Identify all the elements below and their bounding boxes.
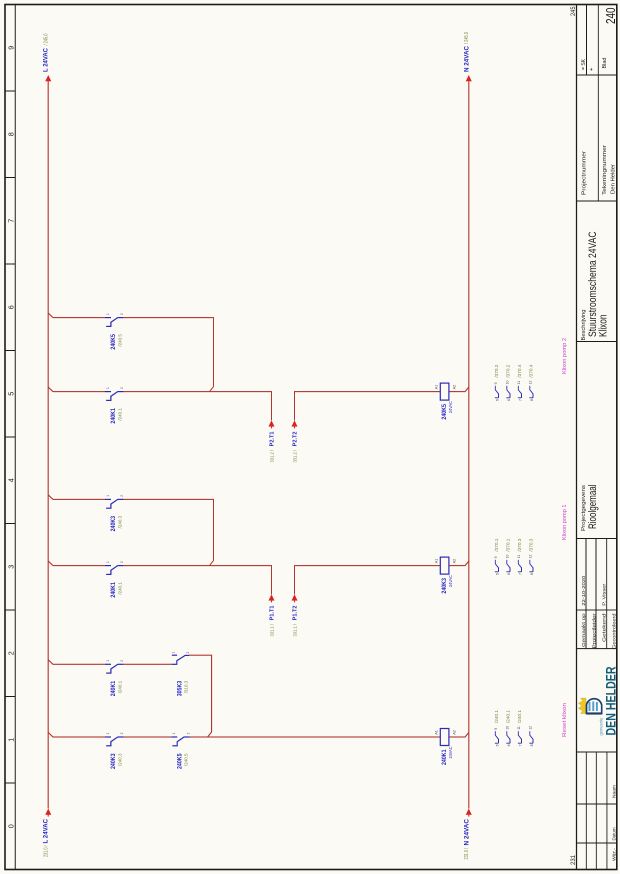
svg-text:L 24VAC: L 24VAC	[43, 48, 50, 72]
svg-text:1: 1	[171, 652, 175, 654]
svg-text:231.0 /: 231.0 /	[43, 845, 49, 857]
svg-text:/ 245.0: / 245.0	[464, 32, 470, 44]
svg-text:245: 245	[570, 6, 577, 16]
svg-text:A1: A1	[435, 730, 439, 735]
svg-text:2: 2	[120, 495, 124, 497]
svg-text:0: 0	[7, 824, 16, 828]
svg-text:Wijz.-: Wijz.-	[612, 847, 617, 861]
svg-text:/370.3: /370.3	[517, 538, 522, 552]
svg-text:9: 9	[494, 556, 498, 558]
svg-text:240K3: 240K3	[110, 515, 117, 531]
svg-text:Projectnummer: Projectnummer	[582, 151, 588, 195]
svg-text:/370.4: /370.4	[517, 364, 522, 378]
svg-text:9: 9	[494, 382, 498, 384]
svg-text:6: 6	[7, 305, 16, 309]
svg-text:240K3: 240K3	[110, 753, 117, 769]
svg-text:10: 10	[506, 726, 510, 730]
svg-text:Klixon pomp 1: Klixon pomp 1	[562, 505, 568, 541]
svg-text:N 24VAC: N 24VAC	[463, 46, 470, 72]
svg-text:/370.2: /370.2	[494, 364, 499, 378]
svg-text:2: 2	[120, 732, 124, 734]
svg-text:331.2 /: 331.2 /	[270, 449, 275, 462]
svg-text:1: 1	[106, 660, 110, 662]
svg-text:240K1: 240K1	[110, 582, 117, 598]
svg-text:/370.2: /370.2	[505, 364, 510, 378]
svg-text:P1.T1: P1.T1	[270, 606, 276, 621]
svg-text:2: 2	[120, 561, 124, 563]
svg-text:/240.1: /240.1	[517, 709, 522, 723]
svg-text:2: 2	[7, 651, 16, 655]
svg-text:Naam: Naam	[612, 785, 617, 798]
svg-text:3: 3	[7, 565, 16, 569]
svg-text:/ 245.0: / 245.0	[43, 33, 49, 45]
svg-text:/240.5: /240.5	[184, 753, 189, 766]
svg-text:240K5: 240K5	[110, 334, 117, 350]
svg-text:11: 11	[517, 381, 521, 385]
svg-text:7: 7	[519, 573, 523, 575]
svg-text:/240.1: /240.1	[505, 709, 510, 723]
svg-text:Projectleider: Projectleider	[591, 613, 597, 648]
svg-text:4: 4	[7, 478, 16, 482]
svg-text:Gemaakt op: Gemaakt op	[581, 613, 587, 647]
svg-text:A2: A2	[453, 385, 457, 390]
svg-text:12: 12	[529, 381, 533, 385]
svg-text:1: 1	[106, 561, 110, 563]
svg-text:/370.4: /370.4	[528, 364, 533, 378]
svg-text:24VAC: 24VAC	[448, 746, 453, 759]
svg-text:24VAC: 24VAC	[448, 401, 453, 414]
svg-text:Tekeningnummer: Tekeningnummer	[602, 145, 608, 195]
svg-text:A2: A2	[453, 730, 457, 735]
svg-text:10: 10	[506, 381, 510, 385]
svg-text:/240.1: /240.1	[494, 709, 499, 723]
svg-text:L 24VAC: L 24VAC	[43, 819, 50, 844]
svg-text:1: 1	[172, 732, 176, 734]
svg-text:8: 8	[530, 573, 534, 575]
svg-text:= SK: = SK	[581, 59, 587, 70]
svg-text:10: 10	[506, 555, 510, 559]
svg-text:1: 1	[106, 313, 110, 315]
svg-text:P. Visser: P. Visser	[601, 583, 607, 605]
svg-text:/370.1: /370.1	[494, 538, 499, 552]
svg-text:305K3: 305K3	[177, 680, 184, 696]
svg-text:/370.3: /370.3	[528, 538, 533, 552]
svg-text:240K5: 240K5	[177, 753, 184, 769]
svg-text:1: 1	[7, 738, 16, 742]
svg-text:240: 240	[603, 8, 618, 25]
svg-text:A1: A1	[435, 385, 439, 390]
svg-text:22-10-2020: 22-10-2020	[581, 575, 587, 605]
svg-text:7: 7	[519, 744, 523, 746]
svg-text:Gecontroleerd: Gecontroleerd	[612, 613, 618, 649]
svg-text:240K1: 240K1	[110, 408, 117, 424]
svg-text:24VAC: 24VAC	[448, 575, 453, 588]
svg-text:Den Helder: Den Helder	[611, 164, 617, 194]
svg-text:331.1 /: 331.1 /	[270, 623, 275, 636]
svg-text:2: 2	[120, 660, 124, 662]
svg-text:7: 7	[519, 399, 523, 401]
svg-text:A2: A2	[453, 559, 457, 564]
svg-text:8: 8	[530, 744, 534, 746]
svg-text:5: 5	[496, 744, 500, 746]
svg-text:2: 2	[120, 313, 124, 315]
svg-text:Getekend: Getekend	[601, 613, 607, 642]
svg-text:1: 1	[106, 495, 110, 497]
svg-text:9: 9	[494, 728, 498, 730]
svg-text:/310.3: /310.3	[184, 680, 189, 693]
svg-text:5: 5	[496, 573, 500, 575]
svg-text:6: 6	[507, 573, 511, 575]
svg-text:P1.T2: P1.T2	[293, 606, 299, 621]
svg-text:6: 6	[507, 744, 511, 746]
svg-text:/240.5: /240.5	[117, 334, 122, 347]
svg-text:331.2 /: 331.2 /	[293, 449, 298, 462]
svg-text:/240.1: /240.1	[117, 680, 122, 693]
svg-text:2: 2	[187, 732, 191, 734]
svg-text:8: 8	[7, 132, 16, 136]
svg-text:P2.T1: P2.T1	[270, 432, 276, 447]
svg-text:11: 11	[517, 726, 521, 730]
svg-text:5: 5	[7, 392, 16, 396]
svg-text:Rioolgemaal: Rioolgemaal	[587, 485, 599, 530]
svg-text:/240.1: /240.1	[117, 582, 122, 595]
svg-text:9: 9	[7, 46, 16, 50]
svg-text:/240.1: /240.1	[117, 408, 122, 421]
svg-text:331.1 /: 331.1 /	[293, 623, 298, 636]
svg-text:12: 12	[529, 555, 533, 559]
svg-text:Datum: Datum	[612, 827, 617, 840]
svg-text:Reset klixon: Reset klixon	[562, 703, 568, 737]
svg-text:Klixon: Klixon	[598, 314, 610, 337]
svg-text:7: 7	[7, 219, 16, 223]
svg-text:Blad: Blad	[602, 57, 608, 68]
svg-text:12: 12	[529, 726, 533, 730]
svg-text:2: 2	[120, 387, 124, 389]
svg-text:/240.3: /240.3	[117, 515, 122, 528]
svg-text:2: 2	[186, 652, 190, 654]
svg-text:231: 231	[570, 855, 577, 865]
svg-text:DEN HELDER: DEN HELDER	[603, 666, 618, 735]
svg-text:+: +	[589, 67, 595, 71]
svg-text:11: 11	[517, 555, 521, 559]
svg-text:1: 1	[106, 732, 110, 734]
svg-text:8: 8	[530, 399, 534, 401]
svg-text:5: 5	[496, 399, 500, 401]
svg-text:1: 1	[106, 387, 110, 389]
svg-text:231.0 /: 231.0 /	[464, 848, 470, 860]
svg-text:P2.T2: P2.T2	[293, 432, 299, 447]
svg-text:Klixon pomp 2: Klixon pomp 2	[562, 338, 568, 374]
svg-text:/240.3: /240.3	[117, 753, 122, 766]
svg-text:6: 6	[507, 399, 511, 401]
svg-text:A1: A1	[435, 559, 439, 564]
svg-text:/370.1: /370.1	[505, 538, 510, 552]
svg-text:N 24VAC: N 24VAC	[463, 819, 470, 846]
svg-text:240K1: 240K1	[110, 680, 117, 696]
